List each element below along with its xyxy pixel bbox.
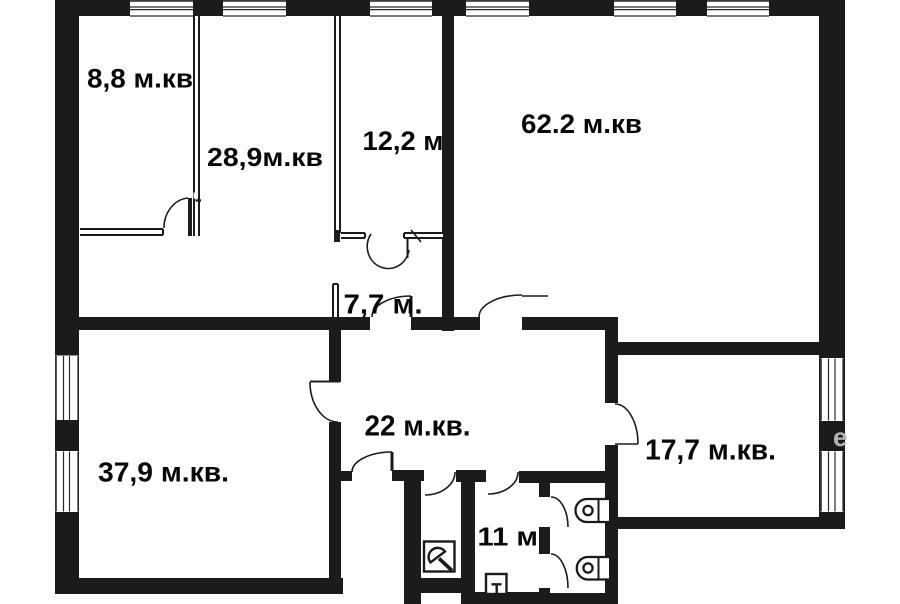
svg-text:28,9м.кв: 28,9м.кв: [207, 142, 323, 172]
svg-text:8,8 м.кв: 8,8 м.кв: [87, 64, 193, 94]
svg-text:11 м: 11 м: [478, 524, 539, 552]
svg-text:e: e: [833, 422, 847, 452]
svg-text:17,7 м.кв.: 17,7 м.кв.: [645, 435, 776, 467]
svg-text:37,9 м.кв.: 37,9 м.кв.: [98, 457, 229, 488]
svg-text:12,2 м: 12,2 м: [363, 126, 444, 156]
svg-text:7,7 м.: 7,7 м.: [344, 289, 423, 320]
svg-text:22 м.кв.: 22 м.кв.: [365, 410, 471, 442]
svg-text:62.2 м.кв: 62.2 м.кв: [521, 109, 642, 139]
